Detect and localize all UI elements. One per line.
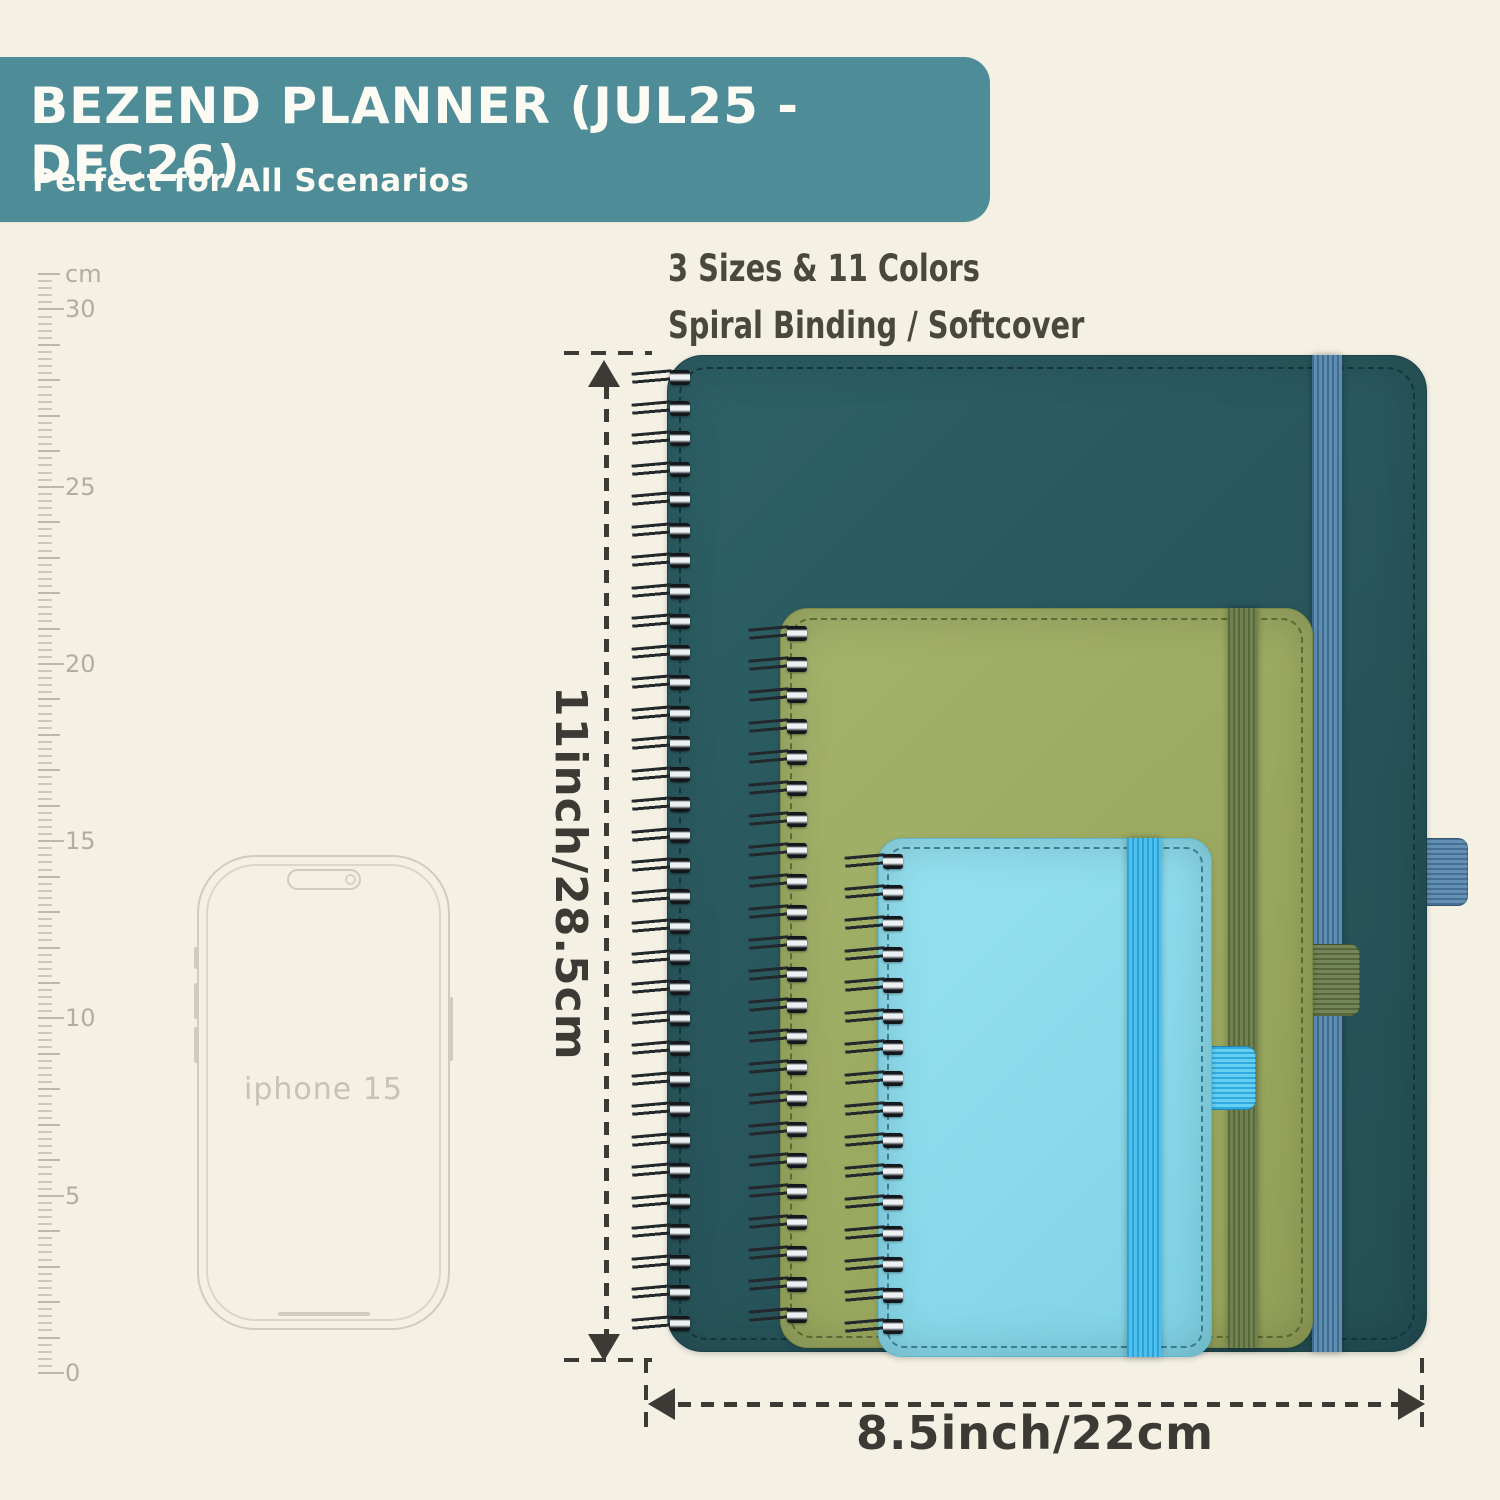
- feature-line-sizes: 3 Sizes & 11 Colors: [668, 240, 1084, 297]
- ruler-minor-tick: [38, 535, 52, 537]
- arrow-down-icon: [588, 1334, 620, 1361]
- ruler-minor-tick: [38, 1294, 52, 1296]
- spiral-coil: [749, 1184, 807, 1199]
- arrow-left-icon: [648, 1388, 675, 1420]
- ruler-minor-tick: [38, 691, 52, 693]
- ruler-tick: [38, 379, 60, 381]
- ruler-minor-tick: [38, 783, 52, 785]
- ruler-tick: [38, 876, 60, 878]
- spiral-coil: [632, 1255, 690, 1270]
- spiral-coil: [632, 1041, 690, 1056]
- ruler-minor-tick: [38, 280, 52, 282]
- ruler-minor-tick: [38, 1280, 52, 1282]
- ruler-minor-tick: [38, 812, 52, 814]
- spiral-coil: [749, 843, 807, 858]
- spiral-coil: [749, 812, 807, 827]
- spiral-coil: [749, 688, 807, 703]
- spiral-coil: [749, 1277, 807, 1292]
- spiral-coil: [845, 1164, 903, 1179]
- ruler-minor-tick: [38, 1202, 52, 1204]
- ruler-tick: [38, 805, 60, 807]
- spiral-coil: [845, 1102, 903, 1117]
- ruler-tick: [38, 734, 60, 736]
- ruler-minor-tick: [38, 1152, 52, 1154]
- arrow-up-icon: [588, 360, 620, 387]
- ruler-minor-tick: [38, 606, 52, 608]
- ruler-minor-tick: [38, 620, 52, 622]
- height-dimension-line: [604, 386, 609, 1336]
- ruler-tick: [38, 486, 64, 488]
- ruler-minor-tick: [38, 1025, 52, 1027]
- ruler-minor-tick: [38, 571, 52, 573]
- ruler-tick: [38, 769, 60, 771]
- ruler-tick: [38, 1053, 60, 1055]
- ruler-minor-tick: [38, 394, 52, 396]
- ruler-minor-tick: [38, 1351, 52, 1353]
- ruler-minor-tick: [38, 500, 52, 502]
- spiral-coil: [749, 1091, 807, 1106]
- ruler-unit-label: cm: [65, 260, 102, 288]
- ruler-minor-tick: [38, 301, 52, 303]
- ruler-minor-tick: [38, 1322, 52, 1324]
- spiral-coil: [632, 858, 690, 873]
- width-dimension-label: 8.5inch/22cm: [800, 1406, 1270, 1460]
- spiral-coil: [632, 1133, 690, 1148]
- ruler-minor-tick: [38, 642, 52, 644]
- ruler-tick: [38, 415, 60, 417]
- iphone-outline: iphone 15: [197, 855, 450, 1330]
- ruler-minor-tick: [38, 798, 52, 800]
- spiral-coil: [632, 889, 690, 904]
- ruler-minor-tick: [38, 968, 52, 970]
- ruler-minor-tick: [38, 429, 52, 431]
- ruler-minor-tick: [38, 1145, 52, 1147]
- action-button-icon: [194, 947, 198, 969]
- spiral-coil: [845, 1009, 903, 1024]
- iphone-label: iphone 15: [199, 1072, 448, 1107]
- spiral-coil: [632, 492, 690, 507]
- spiral-coil: [632, 523, 690, 538]
- ruler-minor-tick: [38, 1329, 52, 1331]
- ruler-minor-tick: [38, 1110, 52, 1112]
- ruler-minor-tick: [38, 337, 52, 339]
- cm-ruler: cm302520151050: [38, 0, 148, 1420]
- ruler-minor-tick: [38, 819, 52, 821]
- ruler-minor-tick: [38, 599, 52, 601]
- ruler-tick: [38, 698, 60, 700]
- spiral-coil: [749, 1060, 807, 1075]
- ruler-tick: [38, 1017, 64, 1019]
- spiral-coil: [845, 1288, 903, 1303]
- spiral-coil: [749, 874, 807, 889]
- ruler-minor-tick: [38, 861, 52, 863]
- height-dimension-label: 11inch/28.5cm: [548, 686, 596, 1026]
- ruler-minor-tick: [38, 493, 52, 495]
- ruler-number-label: 10: [65, 1004, 96, 1032]
- ruler-minor-tick: [38, 578, 52, 580]
- ruler-minor-tick: [38, 727, 52, 729]
- ruler-minor-tick: [38, 613, 52, 615]
- spiral-coil: [749, 905, 807, 920]
- ruler-minor-tick: [38, 762, 52, 764]
- ruler-minor-tick: [38, 457, 52, 459]
- ruler-number-label: 15: [65, 827, 96, 855]
- ruler-minor-tick: [38, 1095, 52, 1097]
- spiral-coil: [749, 1029, 807, 1044]
- ruler-tick: [38, 1230, 60, 1232]
- ruler-minor-tick: [38, 996, 52, 998]
- camera-icon: [345, 874, 356, 885]
- ruler-minor-tick: [38, 925, 52, 927]
- spiral-coil: [749, 750, 807, 765]
- spiral-coil: [749, 781, 807, 796]
- spiral-coil: [845, 1133, 903, 1148]
- ruler-minor-tick: [38, 316, 52, 318]
- ruler-minor-tick: [38, 1138, 52, 1140]
- ruler-minor-tick: [38, 961, 52, 963]
- ruler-minor-tick: [38, 989, 52, 991]
- ruler-minor-tick: [38, 542, 52, 544]
- ruler-minor-tick: [38, 507, 52, 509]
- ruler-minor-tick: [38, 1244, 52, 1246]
- spiral-coil: [845, 854, 903, 869]
- ruler-minor-tick: [38, 1010, 52, 1012]
- spiral-coil: [632, 584, 690, 599]
- ruler-tick: [38, 1124, 60, 1126]
- ruler-minor-tick: [38, 883, 52, 885]
- spiral-coil: [632, 370, 690, 385]
- ruler-minor-tick: [38, 1032, 52, 1034]
- ruler-minor-tick: [38, 294, 52, 296]
- ruler-minor-tick: [38, 720, 52, 722]
- ruler-minor-tick: [38, 585, 52, 587]
- ruler-minor-tick: [38, 847, 52, 849]
- ruler-minor-tick: [38, 1166, 52, 1168]
- ruler-minor-tick: [38, 1173, 52, 1175]
- ruler-minor-tick: [38, 323, 52, 325]
- ruler-tick: [38, 982, 60, 984]
- ruler-minor-tick: [38, 741, 52, 743]
- ruler-tick: [38, 1301, 60, 1303]
- ruler-minor-tick: [38, 1003, 52, 1005]
- ruler-minor-tick: [38, 890, 52, 892]
- volume-up-icon: [194, 983, 198, 1019]
- power-button-icon: [449, 997, 453, 1061]
- ruler-number-label: 5: [65, 1182, 80, 1210]
- ruler-minor-tick: [38, 670, 52, 672]
- feature-line-binding: Spiral Binding / Softcover: [668, 297, 1084, 354]
- extension-line-top: [564, 351, 652, 355]
- ruler-minor-tick: [38, 1308, 52, 1310]
- ruler-minor-tick: [38, 564, 52, 566]
- elastic-band-small: [1127, 838, 1161, 1357]
- spiral-coil: [632, 828, 690, 843]
- spiral-coil: [632, 1011, 690, 1026]
- ruler-tick: [38, 1159, 60, 1161]
- spiral-coil: [845, 947, 903, 962]
- planner-cover-small: [878, 838, 1212, 1357]
- ruler-minor-tick: [38, 677, 52, 679]
- ruler-minor-tick: [38, 932, 52, 934]
- spiral-coil: [632, 553, 690, 568]
- ruler-minor-tick: [38, 550, 52, 552]
- ruler-tick: [38, 1266, 60, 1268]
- dynamic-island-icon: [287, 869, 361, 890]
- spiral-coil: [632, 645, 690, 660]
- ruler-tick: [38, 450, 60, 452]
- spiral-coil: [632, 431, 690, 446]
- spiral-coil: [632, 675, 690, 690]
- ruler-minor-tick: [38, 479, 52, 481]
- ruler-tick: [38, 947, 60, 949]
- ruler-minor-tick: [38, 1344, 52, 1346]
- ruler-minor-tick: [38, 401, 52, 403]
- ruler-number-label: 30: [65, 295, 96, 323]
- feature-text: 3 Sizes & 11 Colors Spiral Binding / Sof…: [668, 240, 1084, 354]
- ruler-minor-tick: [38, 1046, 52, 1048]
- ruler-minor-tick: [38, 287, 52, 289]
- ruler-minor-tick: [38, 854, 52, 856]
- spiral-coil: [632, 462, 690, 477]
- spiral-coil: [749, 967, 807, 982]
- ruler-minor-tick: [38, 1315, 52, 1317]
- ruler-minor-tick: [38, 1188, 52, 1190]
- ruler-minor-tick: [38, 1358, 52, 1360]
- spiral-coil: [845, 1226, 903, 1241]
- spiral-coil: [749, 936, 807, 951]
- spiral-coil: [749, 1215, 807, 1230]
- ruler-tick: [38, 663, 64, 665]
- ruler-number-label: 20: [65, 650, 96, 678]
- spiral-coil: [749, 657, 807, 672]
- spiral-coil: [632, 1224, 690, 1239]
- ruler-minor-tick: [38, 1237, 52, 1239]
- ruler-minor-tick: [38, 1259, 52, 1261]
- spiral-coil: [632, 980, 690, 995]
- ruler-minor-tick: [38, 975, 52, 977]
- ruler-tick: [38, 521, 60, 523]
- ruler-tick: [38, 308, 64, 310]
- spiral-coil: [632, 1072, 690, 1087]
- ruler-tick: [38, 840, 64, 842]
- ruler-minor-tick: [38, 826, 52, 828]
- ruler-minor-tick: [38, 748, 52, 750]
- spiral-coil: [749, 1122, 807, 1137]
- ruler-minor-tick: [38, 1074, 52, 1076]
- ruler-minor-tick: [38, 755, 52, 757]
- ruler-minor-tick: [38, 436, 52, 438]
- ruler-tick: [38, 1195, 64, 1197]
- arrow-right-icon: [1398, 1388, 1425, 1420]
- ruler-tick: [38, 628, 60, 630]
- spiral-coil: [749, 998, 807, 1013]
- ruler-minor-tick: [38, 897, 52, 899]
- ruler-minor-tick: [38, 833, 52, 835]
- ruler-minor-tick: [38, 1223, 52, 1225]
- title-banner: BEZEND PLANNER (JUL25 - DEC26) Perfect f…: [0, 57, 990, 222]
- ruler-minor-tick: [38, 351, 52, 353]
- ruler-tick: [38, 344, 60, 346]
- spiral-coil: [845, 885, 903, 900]
- spiral-coil: [845, 916, 903, 931]
- ruler-minor-tick: [38, 1209, 52, 1211]
- spiral-coil: [632, 1316, 690, 1331]
- elastic-band-medium: [1228, 608, 1258, 1348]
- ruler-minor-tick: [38, 1365, 52, 1367]
- ruler-minor-tick: [38, 1273, 52, 1275]
- spiral-coil: [632, 1163, 690, 1178]
- ruler-minor-tick: [38, 514, 52, 516]
- ruler-tick: [38, 273, 60, 275]
- ruler-minor-tick: [38, 1060, 52, 1062]
- ruler-minor-tick: [38, 408, 52, 410]
- ruler-minor-tick: [38, 656, 52, 658]
- spiral-coil: [749, 1246, 807, 1261]
- ruler-minor-tick: [38, 1117, 52, 1119]
- spiral-coil: [749, 1308, 807, 1323]
- ruler-minor-tick: [38, 649, 52, 651]
- spiral-coil: [632, 401, 690, 416]
- ruler-number-label: 0: [65, 1359, 80, 1387]
- spiral-coil: [749, 626, 807, 641]
- spiral-coil: [632, 614, 690, 629]
- ruler-minor-tick: [38, 705, 52, 707]
- elastic-band-large: [1312, 355, 1342, 1352]
- ruler-tick: [38, 911, 60, 913]
- ruler-minor-tick: [38, 1287, 52, 1289]
- ruler-minor-tick: [38, 1181, 52, 1183]
- spiral-coil: [632, 919, 690, 934]
- volume-down-icon: [194, 1027, 198, 1063]
- ruler-number-label: 25: [65, 473, 96, 501]
- ruler-minor-tick: [38, 939, 52, 941]
- spiral-coil: [632, 1194, 690, 1209]
- spiral-coil: [749, 719, 807, 734]
- ruler-minor-tick: [38, 1131, 52, 1133]
- ruler-minor-tick: [38, 386, 52, 388]
- ruler-minor-tick: [38, 372, 52, 374]
- spiral-coil: [749, 1153, 807, 1168]
- spiral-coil: [632, 950, 690, 965]
- ruler-tick: [38, 557, 60, 559]
- ruler-minor-tick: [38, 443, 52, 445]
- ruler-minor-tick: [38, 918, 52, 920]
- ruler-minor-tick: [38, 1103, 52, 1105]
- spiral-coil: [632, 1102, 690, 1117]
- ruler-minor-tick: [38, 464, 52, 466]
- ruler-tick: [38, 1337, 60, 1339]
- ruler-minor-tick: [38, 1216, 52, 1218]
- spiral-coil: [632, 1285, 690, 1300]
- ruler-minor-tick: [38, 635, 52, 637]
- ruler-minor-tick: [38, 365, 52, 367]
- ruler-minor-tick: [38, 713, 52, 715]
- ruler-minor-tick: [38, 904, 52, 906]
- ruler-minor-tick: [38, 684, 52, 686]
- ruler-tick: [38, 592, 60, 594]
- ruler-minor-tick: [38, 422, 52, 424]
- spiral-coil: [632, 767, 690, 782]
- ruler-tick: [38, 1372, 64, 1374]
- ruler-minor-tick: [38, 358, 52, 360]
- ruler-minor-tick: [38, 528, 52, 530]
- spiral-coil: [845, 978, 903, 993]
- spiral-coil: [845, 1195, 903, 1210]
- spiral-coil: [845, 1040, 903, 1055]
- ruler-minor-tick: [38, 776, 52, 778]
- ruler-tick: [38, 1088, 60, 1090]
- spiral-coil: [845, 1257, 903, 1272]
- ruler-minor-tick: [38, 954, 52, 956]
- speaker-slot-icon: [278, 1312, 370, 1316]
- ruler-minor-tick: [38, 1251, 52, 1253]
- product-infographic: BEZEND PLANNER (JUL25 - DEC26) Perfect f…: [0, 0, 1500, 1500]
- ruler-minor-tick: [38, 1039, 52, 1041]
- spiral-coil: [845, 1319, 903, 1334]
- ruler-minor-tick: [38, 472, 52, 474]
- ruler-minor-tick: [38, 869, 52, 871]
- ruler-minor-tick: [38, 1067, 52, 1069]
- spiral-coil: [845, 1071, 903, 1086]
- ruler-minor-tick: [38, 791, 52, 793]
- spiral-coil: [632, 797, 690, 812]
- spiral-coil: [632, 736, 690, 751]
- ruler-minor-tick: [38, 330, 52, 332]
- ruler-minor-tick: [38, 1081, 52, 1083]
- spiral-coil: [632, 706, 690, 721]
